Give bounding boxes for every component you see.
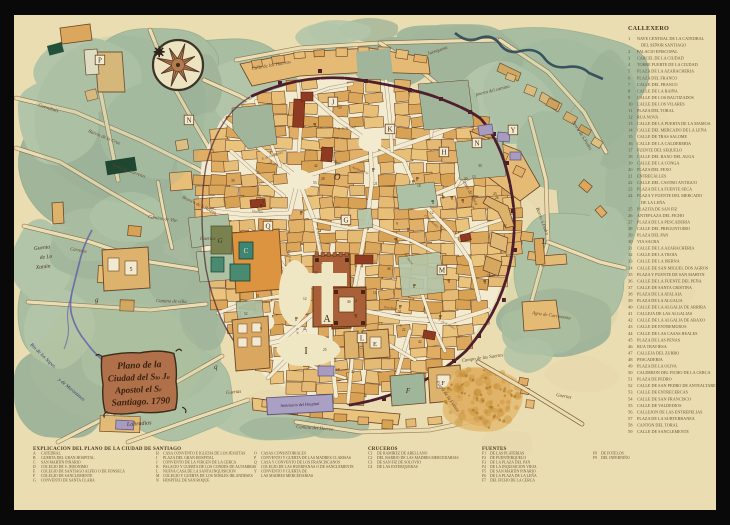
svg-text:PLAZA DE LAS PENAS: PLAZA DE LAS PENAS: [637, 337, 681, 342]
svg-text:38: 38: [628, 292, 633, 297]
svg-text:1: 1: [374, 260, 376, 264]
svg-text:PLAZA DEL FEXO: PLAZA DEL FEXO: [637, 167, 671, 172]
svg-text:CATEDRAL: CATEDRAL: [41, 452, 62, 456]
svg-text:Apostol el Sr: Apostol el Sr: [114, 383, 162, 395]
svg-text:37: 37: [628, 285, 633, 290]
svg-text:CASAS CONSISTORIALES: CASAS CONSISTORIALES: [261, 452, 306, 456]
svg-text:P: P: [98, 57, 102, 65]
svg-text:F4: F4: [482, 465, 486, 469]
svg-text:CALLE DE TRAS SALOME: CALLE DE TRAS SALOME: [637, 134, 687, 139]
svg-text:9: 9: [260, 327, 262, 331]
svg-text:14: 14: [373, 291, 377, 295]
svg-text:31: 31: [256, 294, 260, 298]
svg-text:50: 50: [628, 370, 633, 375]
svg-text:CONVENTO Y GUERTA DE LAS MADRE: CONVENTO Y GUERTA DE LAS MADRES CLARISAS: [261, 456, 351, 460]
svg-text:DE LA INQUISICION VIEJA: DE LA INQUISICION VIEJA: [490, 465, 537, 469]
svg-text:N: N: [474, 139, 479, 147]
svg-text:Y: Y: [510, 126, 515, 134]
svg-text:59: 59: [338, 106, 342, 110]
svg-text:Plano de la: Plano de la: [117, 360, 162, 372]
svg-text:F8: F8: [593, 452, 597, 456]
svg-text:F9: F9: [593, 456, 597, 460]
svg-text:G: G: [33, 479, 36, 483]
svg-text:CALLE DE SANCLEMENTE: CALLE DE SANCLEMENTE: [637, 429, 689, 434]
svg-text:42: 42: [314, 164, 318, 168]
svg-text:CALDERON DEL FICHO DE LA CERCA: CALDERON DEL FICHO DE LA CERCA: [637, 370, 710, 375]
svg-text:DE LA PLAZA DEL PAN: DE LA PLAZA DEL PAN: [490, 461, 530, 465]
svg-text:PLAZA DE PEDRO: PLAZA DE PEDRO: [637, 377, 672, 382]
svg-text:12: 12: [628, 115, 633, 120]
svg-text:K: K: [156, 465, 159, 469]
svg-text:DEL SEÑOR SANTIAGO: DEL SEÑOR SANTIAGO: [641, 43, 686, 48]
svg-text:O: O: [334, 172, 341, 182]
svg-text:LAS MADRES MERCEDARIAS: LAS MADRES MERCEDARIAS: [261, 474, 313, 478]
svg-text:Q: Q: [254, 461, 257, 465]
svg-text:RUA NOVA: RUA NOVA: [637, 115, 658, 120]
svg-text:A: A: [323, 314, 331, 325]
svg-text:39: 39: [628, 298, 633, 303]
svg-text:CALLE DEL CASTRO ANTIGUO: CALLE DEL CASTRO ANTIGUO: [637, 180, 697, 185]
svg-text:J: J: [332, 99, 335, 107]
svg-text:VIA SACRA: VIA SACRA: [637, 239, 659, 244]
svg-text:PALACIO Y GUERTA DE LOS CONDES: PALACIO Y GUERTA DE LOS CONDES DE ALTAMI…: [163, 465, 255, 469]
svg-text:CALLE DE LA ALGALIA DE ARRIBA: CALLE DE LA ALGALIA DE ARRIBA: [637, 305, 706, 310]
svg-text:18: 18: [628, 154, 633, 159]
svg-text:CANTON DEL TORAL: CANTON DEL TORAL: [637, 423, 679, 428]
svg-text:41: 41: [303, 327, 307, 331]
svg-text:CALLE DE LA PUERTA DE LA MAMOA: CALLE DE LA PUERTA DE LA MAMOA: [637, 121, 711, 126]
svg-text:DE LAS ESTERQUERAS: DE LAS ESTERQUERAS: [377, 465, 418, 469]
svg-text:24: 24: [628, 193, 633, 198]
svg-text:CALLE DE LA RAIÑA: CALLE DE LA RAIÑA: [637, 88, 678, 93]
svg-text:CALLE DE SANTA CRISTINA: CALLE DE SANTA CRISTINA: [637, 285, 692, 290]
svg-text:PLAZA DE LA ALGALIA: PLAZA DE LA ALGALIA: [637, 298, 683, 303]
svg-text:I: I: [304, 346, 307, 357]
svg-text:53: 53: [628, 390, 633, 395]
svg-text:PLAZA DE LA SUBTERRANEA: PLAZA DE LA SUBTERRANEA: [637, 416, 695, 421]
svg-text:K: K: [387, 125, 392, 133]
svg-text:PLAZA DE LA OLIVA: PLAZA DE LA OLIVA: [637, 364, 677, 369]
svg-text:CALLE DE LAS CASAS REALES: CALLE DE LAS CASAS REALES: [637, 331, 698, 336]
svg-text:4: 4: [262, 200, 264, 204]
svg-text:23: 23: [493, 192, 497, 196]
svg-text:PLAZA DE LA PESCADERIA: PLAZA DE LA PESCADERIA: [637, 219, 690, 224]
svg-text:O: O: [254, 452, 257, 456]
svg-text:CALLE DE LA TROIA: CALLE DE LA TROIA: [637, 252, 677, 257]
svg-text:ANTEPLAZA DEL FICHO: ANTEPLAZA DEL FICHO: [637, 213, 684, 218]
svg-text:17: 17: [628, 147, 633, 152]
svg-text:26: 26: [495, 196, 499, 200]
svg-text:11: 11: [487, 274, 491, 278]
svg-text:A: A: [33, 452, 36, 456]
svg-text:CASA Y CONVENTO DE LOS FRANCIS: CASA Y CONVENTO DE LOS FRANCISCANOS: [261, 461, 340, 465]
svg-text:25: 25: [323, 348, 327, 352]
svg-text:11: 11: [274, 153, 278, 157]
svg-text:53: 53: [313, 181, 317, 185]
svg-text:34: 34: [628, 265, 633, 270]
svg-text:10: 10: [628, 102, 633, 107]
svg-text:59: 59: [314, 271, 318, 275]
svg-text:CALLEJA DE LAS ALGALIAS: CALLEJA DE LAS ALGALIAS: [637, 311, 693, 316]
svg-text:DE LA PLAZA DE LA LEÑA: DE LA PLAZA DE LA LEÑA: [490, 473, 537, 478]
svg-text:7: 7: [400, 324, 402, 328]
svg-text:46: 46: [387, 267, 391, 271]
svg-text:29: 29: [628, 233, 633, 238]
svg-text:12: 12: [430, 211, 434, 215]
svg-text:17: 17: [336, 368, 340, 372]
svg-text:COLEGIO DE SANTIAGO ALFEO O DE: COLEGIO DE SANTIAGO ALFEO O DE FONSECA: [41, 470, 125, 474]
svg-text:44: 44: [628, 331, 633, 336]
svg-text:HOSPITAL DE SAN ROQUE: HOSPITAL DE SAN ROQUE: [163, 479, 210, 483]
svg-text:31: 31: [628, 246, 633, 251]
svg-text:PLAZA DEL GRAN HOSPITAL: PLAZA DEL GRAN HOSPITAL: [163, 456, 215, 460]
svg-text:54: 54: [628, 396, 633, 401]
svg-text:28: 28: [628, 226, 633, 231]
svg-text:CALLE DE LA AZABACHERIA: CALLE DE LA AZABACHERIA: [637, 246, 694, 251]
svg-text:PLAZA DE LA AZABACHERIA: PLAZA DE LA AZABACHERIA: [637, 69, 694, 74]
svg-text:D: D: [33, 465, 36, 469]
svg-text:CONVENTO Y GUERTA DE: CONVENTO Y GUERTA DE: [261, 470, 308, 474]
svg-text:51: 51: [398, 310, 402, 314]
svg-text:CALLEJA DEL ZURRO: CALLEJA DEL ZURRO: [637, 350, 679, 355]
svg-text:PALACIO EPISCOPAL: PALACIO EPISCOPAL: [637, 49, 678, 54]
svg-text:C: C: [244, 247, 249, 255]
svg-text:40: 40: [347, 300, 351, 304]
svg-text:46: 46: [628, 344, 633, 349]
svg-text:g: g: [95, 296, 99, 304]
svg-text:COLEGIO DE SANCLEMENTE: COLEGIO DE SANCLEMENTE: [41, 474, 93, 478]
svg-text:CALLE DE LA CALDERERIA: CALLE DE LA CALDERERIA: [637, 141, 691, 146]
svg-text:36: 36: [628, 278, 633, 283]
svg-text:55: 55: [628, 403, 633, 408]
svg-text:P: P: [254, 456, 256, 460]
svg-text:CALLE DEL MERCADO DE LA LEÑA: CALLE DEL MERCADO DE LA LEÑA: [637, 128, 707, 133]
svg-text:19: 19: [628, 161, 633, 166]
svg-text:C2: C2: [368, 456, 373, 460]
svg-text:CALLE DE ENTREMUROS: CALLE DE ENTREMUROS: [637, 324, 687, 329]
svg-text:L: L: [541, 237, 547, 246]
svg-text:4: 4: [355, 299, 357, 303]
svg-text:H: H: [441, 148, 446, 156]
svg-text:M: M: [439, 266, 446, 274]
svg-text:49: 49: [628, 364, 633, 369]
svg-text:22: 22: [628, 180, 633, 185]
svg-text:47: 47: [628, 350, 633, 355]
svg-text:32: 32: [503, 224, 507, 228]
svg-text:PLAZA Y FUENTE DEL MERCADO: PLAZA Y FUENTE DEL MERCADO: [637, 193, 702, 198]
svg-text:PLAZA DEL PAN: PLAZA DEL PAN: [637, 233, 668, 238]
svg-text:CALLEJON DE LAS ENTREPELIAS: CALLEJON DE LAS ENTREPELIAS: [637, 409, 703, 414]
svg-text:CALLE DE ENTRECERCAS: CALLE DE ENTRECERCAS: [637, 390, 689, 395]
svg-text:18: 18: [417, 184, 421, 188]
svg-text:CALLE DE SAN MIGUEL DOS AGROS: CALLE DE SAN MIGUEL DOS AGROS: [637, 265, 709, 270]
svg-text:27: 27: [628, 219, 633, 224]
svg-text:Y: Y: [254, 470, 257, 474]
svg-text:F5: F5: [482, 470, 486, 474]
svg-text:F: F: [33, 474, 35, 478]
svg-text:q: q: [214, 363, 218, 371]
svg-text:DEL FICHO DE LA CERCA: DEL FICHO DE LA CERCA: [490, 479, 535, 483]
svg-text:43: 43: [628, 324, 633, 329]
svg-text:DE RAMIREZ DE ABELLANO: DE RAMIREZ DE ABELLANO: [377, 452, 428, 456]
svg-text:14: 14: [628, 128, 633, 133]
svg-text:F7: F7: [482, 479, 486, 483]
svg-text:51: 51: [628, 377, 633, 382]
svg-text:F: F: [405, 387, 411, 395]
svg-text:F6: F6: [482, 474, 486, 478]
svg-text:25: 25: [628, 206, 633, 211]
svg-text:COLEGIO Y GUERTA DE LOS NOBLES: COLEGIO Y GUERTA DE LOS NOBLES IRLANDESE…: [163, 474, 253, 478]
svg-text:5: 5: [130, 267, 133, 273]
svg-text:20: 20: [628, 167, 633, 172]
svg-text:RUA TRAVIESA: RUA TRAVIESA: [637, 344, 667, 349]
svg-text:CALLE DE LA ISERNA: CALLE DE LA ISERNA: [637, 259, 680, 264]
svg-text:CALLEXERO: CALLEXERO: [628, 25, 669, 32]
svg-text:30: 30: [478, 164, 482, 168]
svg-text:N: N: [186, 117, 191, 125]
svg-text:C1: C1: [368, 452, 373, 456]
svg-text:Q: Q: [265, 222, 270, 230]
svg-text:COLEGIO DE LAS HUERFANAS O DE: COLEGIO DE LAS HUERFANAS O DE SANCLEMENT…: [261, 465, 354, 469]
svg-text:CALLE DE LA ALGALIA DE ABAXO: CALLE DE LA ALGALIA DE ABAXO: [637, 318, 705, 323]
svg-text:CALLE DEL PREGUNTOIRO: CALLE DEL PREGUNTOIRO: [637, 226, 690, 231]
svg-text:26: 26: [628, 213, 633, 218]
svg-text:NUEVA CASA DE LA SANTA INQUISI: NUEVA CASA DE LA SANTA INQUISICION: [163, 470, 236, 474]
svg-text:32: 32: [628, 252, 633, 257]
svg-text:CALLE DE VALDEDIOS: CALLE DE VALDEDIOS: [637, 403, 682, 408]
svg-text:PLAZA Y FUENTE DE SAN MARTIN: PLAZA Y FUENTE DE SAN MARTIN: [637, 272, 704, 277]
svg-text:59: 59: [628, 429, 633, 434]
svg-text:28: 28: [321, 177, 325, 181]
svg-text:CARCEL DE LA CIUDAD: CARCEL DE LA CIUDAD: [637, 56, 684, 61]
svg-text:F3: F3: [482, 461, 486, 465]
svg-text:SAN MARTIN PINARIO: SAN MARTIN PINARIO: [41, 461, 81, 465]
svg-text:1: 1: [321, 261, 323, 265]
svg-text:DE FOTELOS: DE FOTELOS: [601, 452, 624, 456]
svg-text:CALLE DE LOS BAUTIZADOS: CALLE DE LOS BAUTIZADOS: [637, 95, 695, 100]
svg-text:41: 41: [628, 311, 633, 316]
svg-text:22: 22: [402, 328, 406, 332]
svg-text:GUERTA DEL GRAN HOSPITAL: GUERTA DEL GRAN HOSPITAL: [41, 456, 95, 460]
svg-text:42: 42: [628, 318, 633, 323]
svg-text:CALLE DE LA FUENTE DEL PEÑA: CALLE DE LA FUENTE DEL PEÑA: [637, 278, 702, 283]
svg-text:PLAZA DE LA ATALAIA: PLAZA DE LA ATALAIA: [637, 292, 682, 297]
svg-text:C3: C3: [368, 461, 373, 465]
svg-text:9: 9: [396, 222, 398, 226]
svg-text:G: G: [343, 216, 348, 224]
svg-text:CALLE DE LOS VILARES: CALLE DE LOS VILARES: [637, 102, 685, 107]
svg-text:13: 13: [628, 121, 633, 126]
svg-text:13: 13: [472, 175, 476, 179]
svg-text:CALLE DEL FRANCO: CALLE DEL FRANCO: [637, 82, 678, 87]
svg-text:21: 21: [628, 174, 633, 179]
svg-text:F2: F2: [482, 456, 486, 460]
svg-text:CONVENTO DE SANTA CLARA: CONVENTO DE SANTA CLARA: [41, 479, 95, 483]
svg-text:21: 21: [374, 182, 378, 186]
svg-text:39: 39: [333, 160, 337, 164]
svg-text:S: S: [254, 465, 256, 469]
svg-text:DE SAN MARTIN PINARIO: DE SAN MARTIN PINARIO: [490, 470, 536, 474]
svg-text:40: 40: [628, 305, 633, 310]
svg-text:E: E: [373, 341, 377, 348]
svg-text:DE LAS PLATERIAS: DE LAS PLATERIAS: [490, 452, 524, 456]
svg-text:DEL BARRIO DE LAS MADRES MERCE: DEL BARRIO DE LAS MADRES MERCEDARIAS: [377, 456, 459, 460]
svg-text:15: 15: [628, 134, 633, 139]
svg-text:23: 23: [628, 187, 633, 192]
svg-text:11: 11: [628, 108, 633, 113]
svg-text:30: 30: [628, 239, 633, 244]
svg-text:FUENTE DEL SEQUELO: FUENTE DEL SEQUELO: [637, 147, 682, 152]
svg-text:PESCADERIA: PESCADERIA: [637, 357, 663, 362]
svg-text:PLAZA DEL FRANCO: PLAZA DEL FRANCO: [637, 75, 677, 80]
svg-text:ENTRECALLES: ENTRECALLES: [637, 174, 667, 179]
svg-text:CONVENTO DE LA VIRGEN DE LA CE: CONVENTO DE LA VIRGEN DE LA CERCA: [163, 461, 237, 465]
svg-text:N: N: [156, 479, 159, 483]
svg-text:39: 39: [231, 179, 235, 183]
svg-text:CALLE DE LA CONGA: CALLE DE LA CONGA: [637, 161, 679, 166]
svg-text:57: 57: [628, 416, 633, 421]
svg-text:CALLE DEL RAXO DEL AUGA: CALLE DEL RAXO DEL AUGA: [637, 154, 694, 159]
svg-text:C4: C4: [368, 465, 373, 469]
svg-text:35: 35: [628, 272, 633, 277]
svg-text:Huertas: Huertas: [199, 237, 216, 242]
svg-text:DEL INFERNIÑO: DEL INFERNIÑO: [601, 455, 630, 460]
svg-text:TORRE FUERTE DE LA CIUDAD: TORRE FUERTE DE LA CIUDAD: [637, 62, 698, 67]
svg-text:DE LA LEÑA: DE LA LEÑA: [641, 200, 665, 205]
svg-text:PLAZITA DE SAN FIZ: PLAZITA DE SAN FIZ: [637, 206, 678, 211]
svg-text:56: 56: [628, 409, 633, 414]
svg-text:PLAZA DEL TORAL: PLAZA DEL TORAL: [637, 108, 675, 113]
svg-text:52: 52: [628, 383, 633, 388]
svg-text:12: 12: [303, 297, 307, 301]
svg-text:F1: F1: [482, 452, 486, 456]
svg-text:CALLE DE SAN PEDRO DE ANTEALTA: CALLE DE SAN PEDRO DE ANTEALTARES: [637, 383, 719, 388]
svg-text:42: 42: [351, 370, 355, 374]
svg-text:PLAZA DE LA FUENTE SECA: PLAZA DE LA FUENTE SECA: [637, 187, 692, 192]
svg-text:42: 42: [418, 340, 422, 344]
svg-text:CASA CONVENTO E IGLESIA DE LOS: CASA CONVENTO E IGLESIA DE LOS JESUITAS: [163, 452, 245, 456]
svg-text:DE FUENTERQUELO: DE FUENTERQUELO: [490, 456, 526, 460]
svg-text:H: H: [156, 452, 159, 456]
svg-text:COLEGIO DE S. JERONIMO: COLEGIO DE S. JERONIMO: [41, 465, 88, 469]
svg-text:DE SAN FIZ DE SOLOVIO: DE SAN FIZ DE SOLOVIO: [377, 461, 421, 465]
svg-text:G: G: [217, 237, 222, 245]
svg-text:45: 45: [256, 171, 260, 175]
svg-text:NAVE CENTRAL DE LA CATEDRAL: NAVE CENTRAL DE LA CATEDRAL: [637, 36, 705, 41]
svg-text:L: L: [360, 334, 364, 342]
svg-text:52: 52: [244, 312, 248, 316]
svg-text:CALLE DE SAN FRANCISCO: CALLE DE SAN FRANCISCO: [637, 396, 691, 401]
svg-text:45: 45: [628, 337, 633, 342]
svg-text:33: 33: [628, 259, 633, 264]
svg-text:58: 58: [628, 423, 633, 428]
svg-text:16: 16: [628, 141, 633, 146]
svg-text:48: 48: [628, 357, 633, 362]
